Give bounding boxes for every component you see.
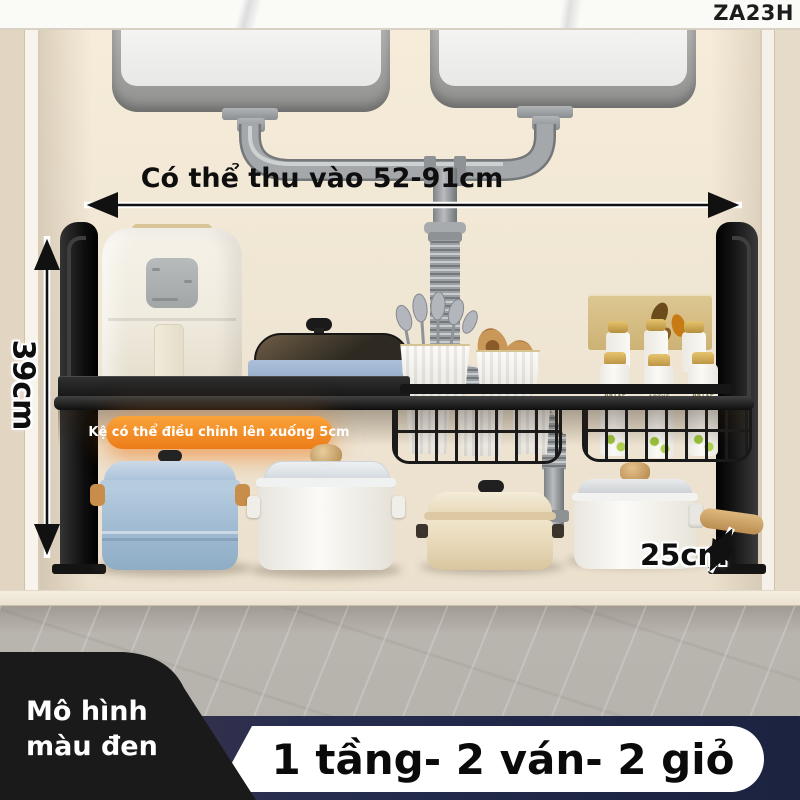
cabinet-front-edge (0, 590, 800, 607)
banner-text: 1 tầng- 2 ván- 2 giỏ (272, 735, 735, 784)
variant-label: Mô hình màu đen (26, 694, 206, 764)
cream-casserole (424, 480, 556, 572)
bottle-cap (608, 321, 628, 333)
left-sink-bottom (121, 28, 381, 86)
width-dimension-label: Có thể thu vào 52-91cm (112, 163, 532, 197)
marble-countertop (0, 0, 800, 30)
variant-line1: Mô hình (26, 694, 206, 729)
left-cabinet-door (0, 28, 25, 604)
product-photo: ARTXE ARTXE ARTXE Kệ có thể điều chỉnh l… (0, 0, 800, 800)
banner-pill: 1 tầng- 2 ván- 2 giỏ (216, 726, 764, 792)
display-mark (152, 268, 160, 271)
left-door-gap (25, 28, 40, 604)
blue-steamer-pot (100, 448, 240, 570)
right-drain-nut (532, 116, 560, 130)
saucepan-glass-lid (254, 333, 410, 363)
casserole-handle (416, 524, 428, 538)
casserole-body (427, 520, 553, 570)
left-drain-nut (237, 118, 265, 132)
height-dimension-label: 39cm (6, 340, 41, 431)
steamer-body (102, 488, 238, 570)
casserole-lid (428, 492, 552, 514)
display-mark (184, 280, 192, 283)
right-cabinet-door (774, 28, 800, 604)
casserole-handle (552, 524, 564, 538)
air-fryer-seam (108, 318, 236, 321)
air-fryer (102, 222, 242, 392)
depth-dimension-label: 25cm (640, 538, 730, 570)
stockpot-handle (392, 496, 405, 518)
rack-front-rail (54, 396, 754, 410)
right-sink-basin (430, 28, 696, 108)
variant-line2: màu đen (26, 729, 206, 764)
left-sink-basin (112, 28, 390, 112)
casserole-rim (424, 512, 556, 520)
steamer-rim (100, 480, 240, 488)
rack-shelf-rail (400, 384, 734, 394)
steamer-handle (90, 484, 105, 506)
right-sink-bottom (439, 28, 687, 86)
display-mark (152, 298, 178, 301)
bottle-cap (646, 319, 666, 331)
model-code: ZA23H (690, 1, 794, 25)
white-stock-pot (256, 444, 396, 570)
bottle-cap (684, 321, 704, 333)
stockpot-body (258, 487, 394, 570)
air-fryer-display (146, 258, 198, 308)
stockpot-handle (247, 496, 260, 518)
